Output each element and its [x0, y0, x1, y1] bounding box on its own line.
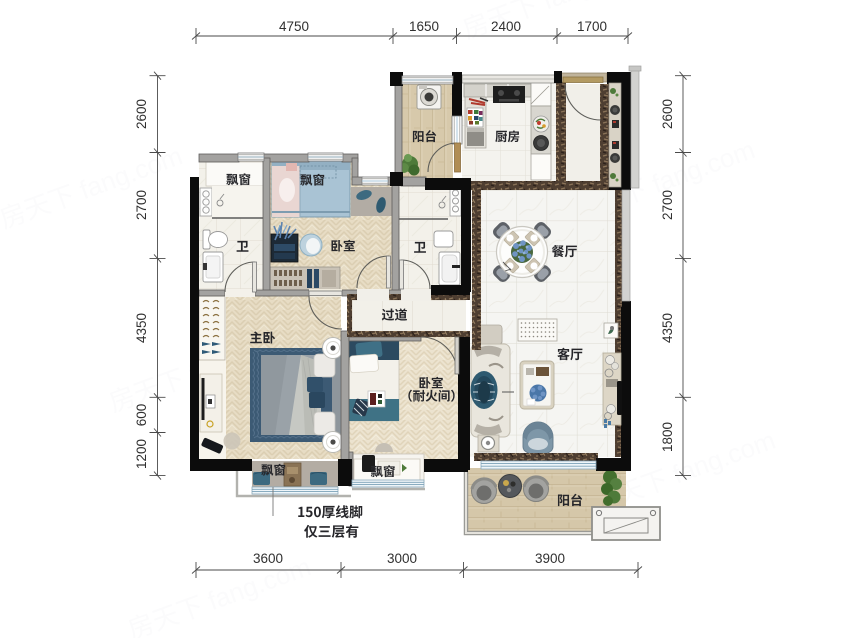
- svg-text:3900: 3900: [535, 551, 565, 566]
- svg-text:2600: 2600: [134, 99, 149, 129]
- svg-text:4350: 4350: [660, 313, 675, 343]
- svg-text:1200: 1200: [134, 439, 149, 469]
- svg-text:600: 600: [134, 404, 149, 427]
- svg-text:2400: 2400: [491, 19, 521, 34]
- svg-text:4750: 4750: [279, 19, 309, 34]
- svg-text:3600: 3600: [253, 551, 283, 566]
- svg-text:1800: 1800: [660, 422, 675, 452]
- svg-text:1700: 1700: [577, 19, 607, 34]
- svg-text:4350: 4350: [134, 313, 149, 343]
- svg-text:2600: 2600: [660, 99, 675, 129]
- svg-text:2700: 2700: [134, 190, 149, 220]
- svg-text:1650: 1650: [409, 19, 439, 34]
- svg-text:3000: 3000: [387, 551, 417, 566]
- svg-text:2700: 2700: [660, 190, 675, 220]
